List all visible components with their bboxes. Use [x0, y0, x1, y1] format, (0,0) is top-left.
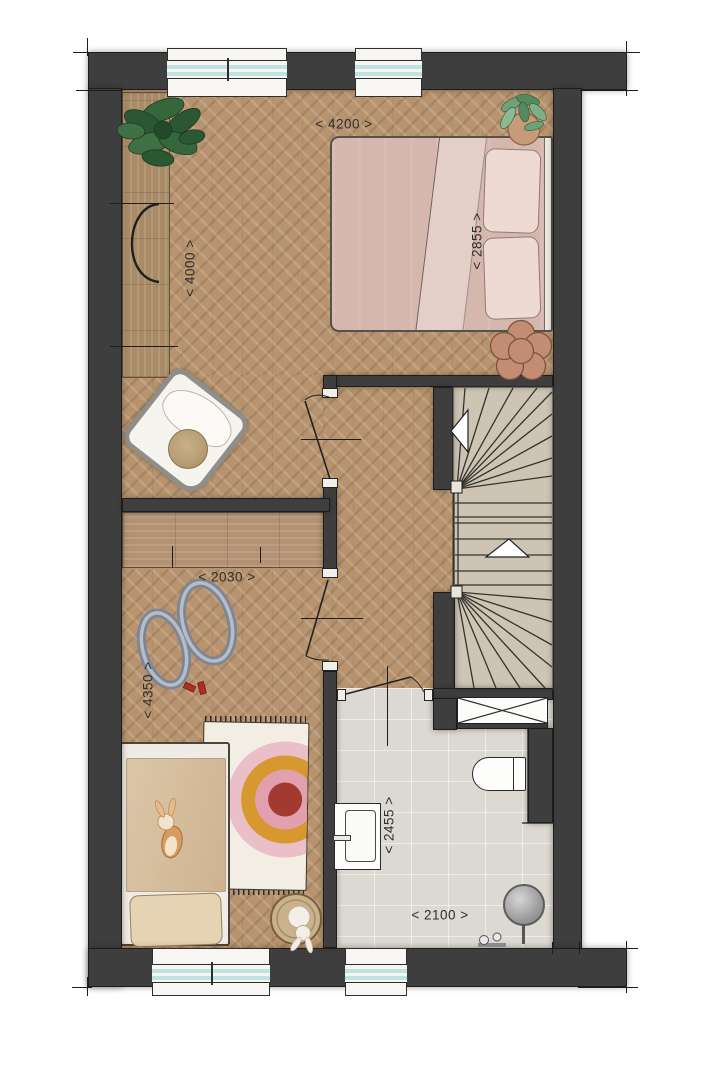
dimension-label-2855: < 2855 >	[470, 212, 485, 269]
dimension-tick	[626, 80, 627, 96]
dimension-tick	[103, 948, 124, 949]
dimension-label-2455: < 2455 >	[382, 796, 397, 853]
wall-stair-upper	[433, 387, 453, 490]
door-post	[337, 689, 346, 701]
washbasin	[334, 803, 381, 870]
dimension-tick	[579, 942, 580, 954]
door-post	[322, 661, 338, 671]
toilet-cistern-line	[513, 758, 514, 790]
window-glazing	[345, 964, 407, 983]
door-post	[424, 689, 433, 701]
dimension-tick	[552, 942, 553, 954]
dimension-tick	[110, 346, 178, 347]
wall-bathroom-north-chunk	[433, 698, 457, 730]
dimension-tick	[87, 38, 88, 56]
dimension-label-4000: < 4000 >	[183, 239, 198, 296]
dimension-label-4350: < 4350 >	[141, 661, 156, 718]
window-mullion	[227, 58, 229, 81]
dimension-tick	[387, 666, 388, 746]
dimension-tick	[618, 52, 640, 53]
window-glazing	[355, 60, 422, 79]
dimension-tick	[110, 203, 174, 204]
desk	[122, 92, 170, 378]
shower-head	[503, 884, 545, 926]
wall-stair-lower	[433, 592, 455, 690]
window-top-right	[355, 48, 422, 97]
stairwell-floor	[453, 387, 553, 690]
door-post	[322, 388, 338, 398]
double-bed	[330, 136, 553, 332]
dimension-tick	[76, 90, 123, 91]
single-bed	[120, 742, 230, 946]
washbasin-tap	[333, 835, 351, 841]
toilet-partition	[528, 728, 553, 823]
bed-pillow	[483, 236, 542, 320]
wall-master-south	[328, 375, 553, 387]
dimension-tick	[73, 52, 92, 53]
wall-left	[88, 88, 122, 987]
dimension-label-4200: < 4200 >	[315, 117, 372, 132]
window-mullion	[211, 962, 213, 985]
door-post	[322, 478, 338, 488]
wall-kids-north	[122, 498, 330, 512]
dimension-tick	[626, 941, 627, 954]
ventilation-shaft	[457, 697, 548, 724]
kids-duvet	[126, 758, 226, 892]
dimension-tick	[72, 987, 92, 988]
dimension-tick	[580, 90, 638, 91]
bed-pillow	[483, 148, 542, 234]
headboard	[544, 136, 553, 332]
dimension-tick	[301, 618, 363, 619]
shower-stem	[522, 924, 525, 944]
dimension-tick	[260, 547, 261, 563]
dimension-tick	[626, 41, 627, 58]
window-bottom-left	[152, 948, 270, 996]
floor-plan: < 4200 > < 2855 > < 4000 > < 2030 > < 43…	[0, 0, 702, 1080]
toilet	[472, 757, 526, 791]
dimension-tick	[578, 987, 638, 988]
window-bottom-right	[345, 948, 407, 996]
window-top-left	[167, 48, 287, 97]
wall-right	[553, 88, 582, 950]
dimension-label-2030: < 2030 >	[198, 570, 255, 585]
dimension-tick	[301, 439, 361, 440]
dimension-tick	[626, 980, 627, 993]
dimension-label-2100: < 2100 >	[411, 908, 468, 923]
dimension-tick	[172, 546, 173, 568]
dimension-tick	[578, 948, 638, 949]
wardrobe	[122, 512, 330, 568]
door-post	[322, 568, 338, 578]
pouf	[168, 429, 208, 469]
kids-pillow	[129, 892, 223, 947]
